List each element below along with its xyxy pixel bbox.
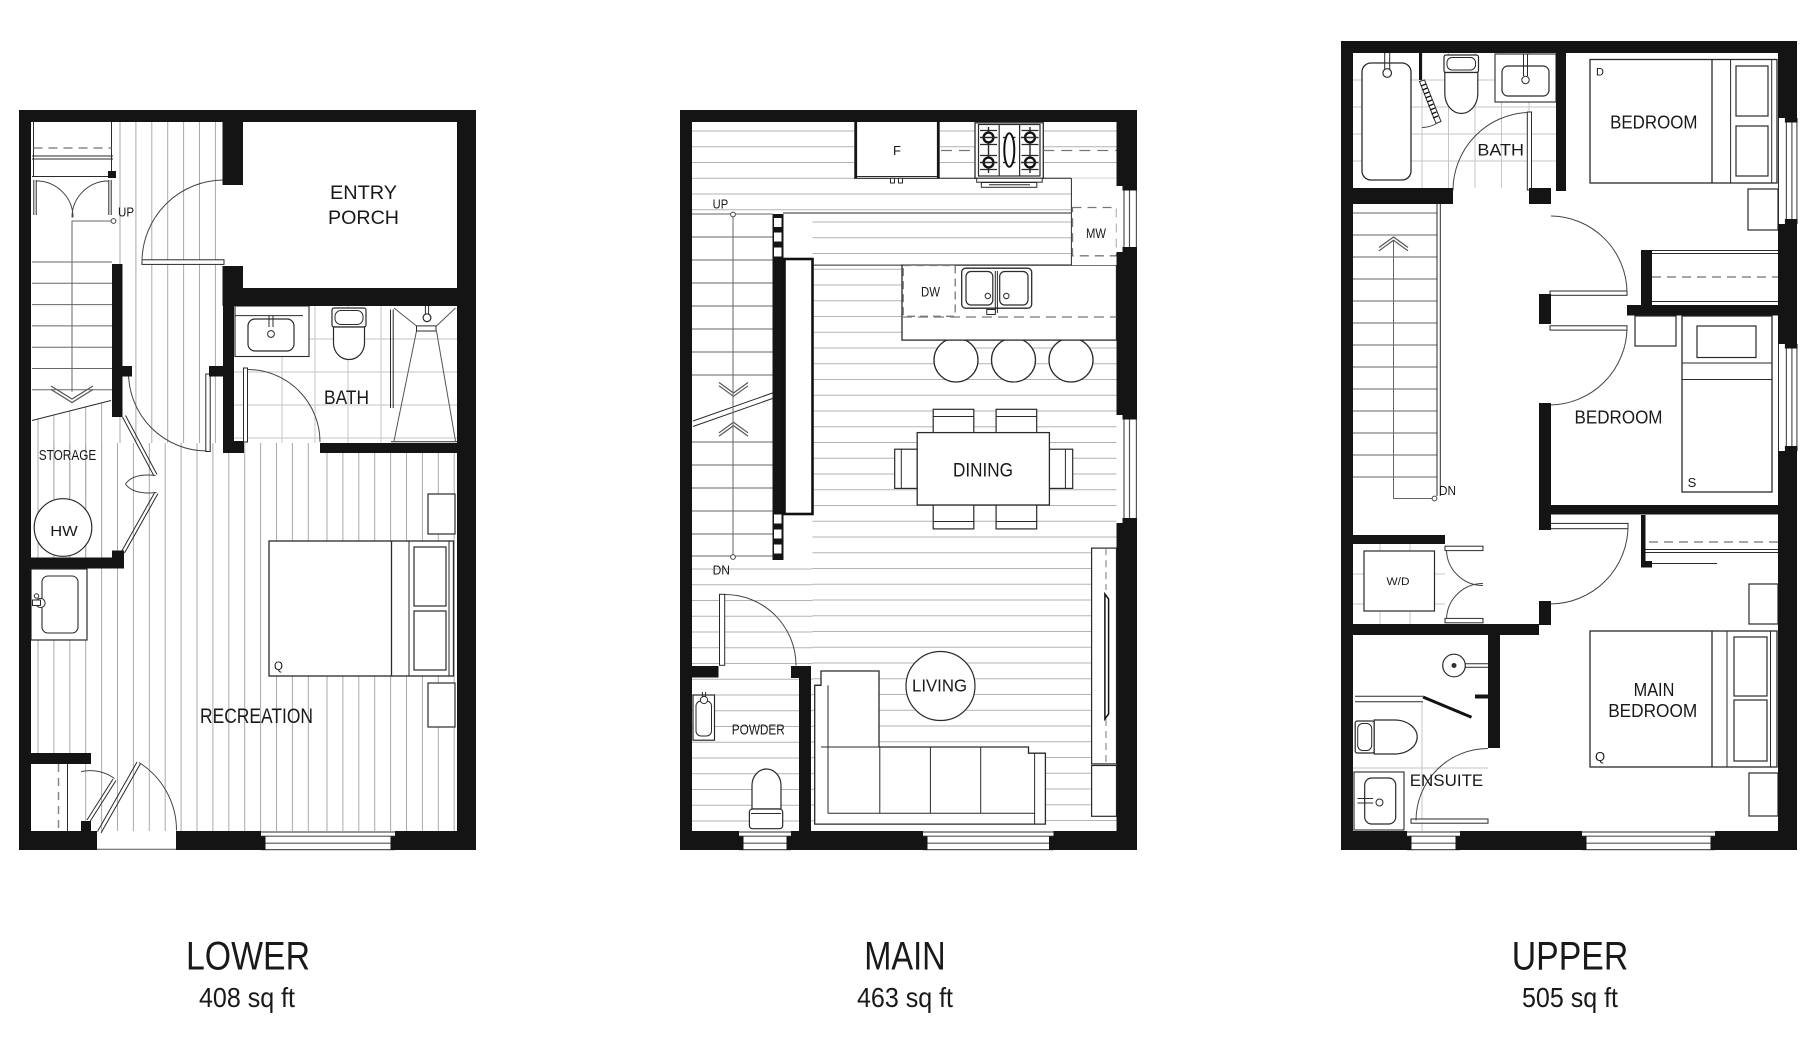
svg-text:BEDROOM: BEDROOM: [1608, 700, 1697, 721]
svg-text:S: S: [1688, 475, 1697, 490]
svg-text:MAIN: MAIN: [864, 935, 945, 979]
svg-text:MAIN: MAIN: [1634, 679, 1675, 700]
svg-text:BATH: BATH: [1477, 140, 1524, 159]
svg-text:408 sq ft: 408 sq ft: [199, 982, 295, 1013]
svg-text:BEDROOM: BEDROOM: [1610, 111, 1697, 132]
svg-text:W/D: W/D: [1387, 576, 1410, 588]
svg-text:ENTRY: ENTRY: [330, 183, 397, 204]
svg-text:UPPER: UPPER: [1512, 935, 1629, 979]
svg-text:505 sq ft: 505 sq ft: [1522, 982, 1618, 1013]
svg-text:BATH: BATH: [324, 387, 369, 409]
svg-text:STORAGE: STORAGE: [39, 447, 97, 464]
svg-text:DW: DW: [921, 285, 940, 300]
svg-text:RECREATION: RECREATION: [200, 705, 313, 728]
svg-text:DN: DN: [713, 563, 730, 578]
svg-text:F: F: [893, 143, 901, 158]
svg-text:Q: Q: [1595, 749, 1605, 764]
svg-text:MW: MW: [1086, 226, 1106, 241]
svg-text:BEDROOM: BEDROOM: [1575, 407, 1663, 428]
svg-text:Q: Q: [274, 661, 283, 673]
svg-text:POWDER: POWDER: [732, 722, 785, 739]
svg-text:463 sq ft: 463 sq ft: [857, 982, 953, 1013]
svg-text:ENSUITE: ENSUITE: [1410, 772, 1484, 790]
svg-text:UP: UP: [118, 205, 134, 220]
svg-text:LOWER: LOWER: [186, 935, 310, 979]
svg-text:PORCH: PORCH: [328, 208, 399, 229]
svg-text:HW: HW: [50, 523, 78, 540]
svg-text:DINING: DINING: [953, 461, 1013, 482]
svg-text:D: D: [1596, 66, 1604, 78]
svg-text:LIVING: LIVING: [912, 676, 967, 696]
svg-text:UP: UP: [713, 197, 729, 212]
svg-text:DN: DN: [1439, 483, 1456, 498]
